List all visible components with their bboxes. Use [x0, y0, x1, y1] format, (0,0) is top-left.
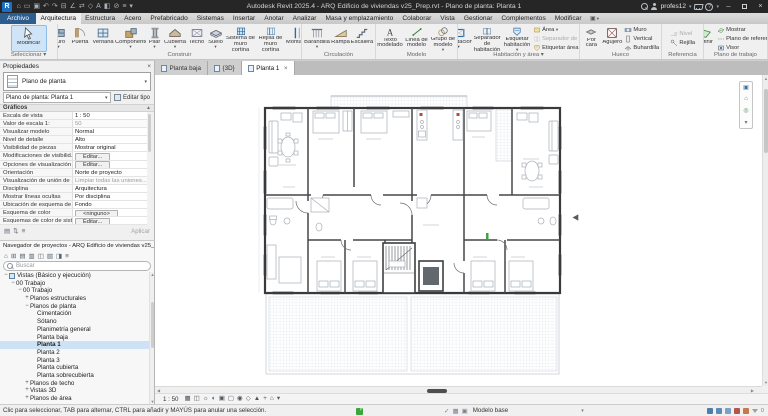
area-button[interactable]: Área▾: [532, 25, 580, 34]
views-icon: [9, 273, 15, 279]
ribbon-tab-acero[interactable]: Acero: [120, 13, 146, 24]
filter-icon[interactable]: ▤: [4, 227, 10, 235]
qat-undo-icon[interactable]: ↶: [41, 0, 50, 13]
tree-item-vistas-basico-y-ejecucion[interactable]: −Vistas (Básico y ejecución): [0, 272, 154, 280]
qat-save-icon[interactable]: ▣: [32, 0, 42, 13]
ribbon-tab-label: Analizar: [293, 15, 317, 22]
qat-measure-icon[interactable]: ∠: [68, 0, 77, 13]
browser-tool-icon-7[interactable]: ≡: [65, 253, 69, 260]
dropdown-caret-icon: ▾: [174, 45, 176, 49]
floor-plan-drawing[interactable]: [155, 75, 762, 386]
definir-button[interactable]: Definir: [704, 25, 716, 52]
dropdown-caret-icon: ▾: [458, 45, 460, 49]
tree-item-00-trabajo[interactable]: −00 Trabajo: [0, 287, 154, 295]
grupo-de-modelo-button[interactable]: Grupo de modelo▾: [430, 25, 457, 52]
ribbon-tab-label: Vista: [440, 15, 455, 22]
dropdown-caret-icon: ▾: [58, 45, 60, 49]
property-label: Mostrar líneas ocultas: [0, 193, 72, 200]
desktop-connector-icon[interactable]: [356, 408, 363, 415]
edit-type-button[interactable]: Editar tipo: [113, 94, 151, 101]
selection-count: 0: [761, 408, 764, 414]
browser-tool-icon-5[interactable]: ▧: [47, 252, 53, 260]
ribbon-panel-title[interactable]: Habitación y área ▾: [458, 52, 579, 59]
property-value[interactable]: Fondo: [72, 201, 151, 208]
ribbon-tab-colaborar[interactable]: Colaborar: [398, 13, 436, 24]
view-document-icon: [214, 65, 220, 72]
property-label: Visualizar modelo: [0, 128, 72, 135]
property-label: Valor de escala 1:: [0, 120, 72, 127]
tree-item-label: Vistas 3D: [30, 387, 56, 395]
minimize-button[interactable]: –: [722, 0, 735, 13]
separador-de-habitacion-label: Separador de habitación: [472, 36, 503, 52]
help-menu-caret-icon[interactable]: ▾: [716, 4, 719, 10]
restore-button[interactable]: [738, 0, 751, 13]
tree-item-label: 00 Trabajo: [16, 280, 45, 288]
view-document-icon: [248, 65, 254, 72]
graphics-section-header[interactable]: Gráficos ▲: [0, 104, 154, 112]
ribbon-panel-hueco: Por caraAgujeroMuroVerticalBuhardillaHue…: [580, 24, 662, 59]
view-tab-planta-baja[interactable]: Planta baja: [155, 61, 208, 75]
view-tab-label: {3D}: [223, 65, 235, 72]
shadows-icon[interactable]: ◐: [212, 394, 216, 404]
pan-icon[interactable]: ⌂: [744, 96, 748, 102]
separador-de-area-button[interactable]: Separador de área: [532, 34, 580, 43]
property-value[interactable]: <ninguno>: [72, 209, 151, 216]
property-row: DisciplinaArquitectura: [0, 185, 151, 193]
worksharing-display-icon[interactable]: +: [263, 394, 267, 404]
worksets-dialog-icon[interactable]: ▦: [452, 407, 458, 415]
temporary-hide-isolate-icon[interactable]: ◇: [246, 394, 251, 404]
property-row: Visualizar modeloNormal: [0, 128, 151, 136]
qat-customize-qat-icon[interactable]: ▾: [128, 0, 135, 13]
montante-label: Montante: [285, 40, 302, 46]
sort-icon[interactable]: ⇅: [13, 227, 18, 235]
worksharing-status-icon[interactable]: [707, 408, 713, 414]
pilar-button[interactable]: Pilar▾: [146, 25, 163, 52]
property-row: Esquema de color<ninguno>: [0, 209, 151, 217]
navigation-bar[interactable]: ▣ ⌂ ◎ ▾: [739, 81, 753, 129]
browser-header: Navegador de proyectos - ARQ Edificio de…: [0, 241, 154, 251]
tree-item-planta-1[interactable]: Planta 1: [0, 341, 154, 349]
separador-de-habitacion-button[interactable]: Separador de habitación: [472, 25, 503, 52]
property-row: Escala de vista1 : 50: [0, 112, 151, 120]
property-edit-button[interactable]: Editar...: [75, 218, 110, 225]
ribbon-tab-modificar[interactable]: Modificar: [550, 13, 586, 24]
properties-title: Propiedades: [3, 63, 39, 70]
tree-item-label: Planos de techo: [30, 380, 74, 388]
tree-scroll-thumb[interactable]: [151, 302, 154, 348]
qat-open-icon[interactable]: ▭: [22, 0, 32, 13]
ribbon-panel-title[interactable]: Seleccionar ▾: [0, 52, 57, 59]
property-value[interactable]: 50: [72, 120, 151, 127]
reveal-hidden-elements-icon[interactable]: ▲: [254, 394, 260, 404]
ribbon-tab-label: Acero: [124, 15, 141, 22]
qat-tag-icon[interactable]: ◇: [86, 0, 94, 13]
section-collapse-icon[interactable]: ▲: [146, 105, 151, 111]
browser-tool-icon-3[interactable]: ▥: [29, 252, 35, 260]
crop-region-visibility-icon[interactable]: ◉: [237, 394, 243, 404]
quick-access-toolbar: ⌂▭▣↶↷⊟∠⇄◇A◧⊘≡▾: [15, 0, 134, 13]
view-tab-planta-1[interactable]: Planta 1×: [242, 61, 295, 75]
ribbon-panel-title[interactable]: Referencia: [662, 52, 703, 59]
ribbon-tab-label: Masa y emplazamiento: [326, 15, 394, 22]
tree-item-planimetria-general[interactable]: Planimetría general: [0, 326, 154, 334]
modify-state-icon[interactable]: ▣▾: [586, 13, 603, 24]
property-value[interactable]: Arquitectura: [72, 185, 151, 192]
tree-item-planta-3[interactable]: Planta 3: [0, 357, 154, 365]
design-options-icon[interactable]: ▣: [462, 407, 468, 415]
habitacion-label: Habitación: [458, 40, 472, 46]
instance-caret-icon: ▾: [105, 95, 109, 101]
select-underlay-toggle-icon[interactable]: [743, 408, 749, 414]
user-menu-caret-icon[interactable]: ▾: [689, 4, 692, 10]
property-value[interactable]: Editar...: [72, 217, 151, 224]
property-row: Visibilidad de piezasMostrar original: [0, 144, 151, 152]
search-icon[interactable]: [641, 3, 648, 10]
tree-item-label: Vistas (Básico y ejecución): [17, 272, 91, 280]
sistema-de-muro-cortina-label: Sistema de muro cortina: [225, 36, 256, 52]
view-tab-3d[interactable]: {3D}: [208, 61, 242, 75]
ribbon-tab-archivo[interactable]: Archivo: [0, 13, 36, 24]
property-row: OrientaciónNorte de proyecto: [0, 169, 151, 177]
vertical-scrollbar[interactable]: ▲ ▼: [762, 75, 768, 386]
nivel-button[interactable]: Nivel: [669, 30, 696, 39]
tree-item-label: Planos de planta: [30, 303, 76, 311]
help-icon[interactable]: ?: [705, 3, 713, 11]
tree-item-label: Planta baja: [37, 334, 68, 342]
tree-item-label: Planta 1: [37, 341, 61, 349]
editing-requests-icon[interactable]: ✓: [444, 407, 449, 415]
ribbon-tab-label: Prefabricado: [150, 15, 187, 22]
property-label: Orientación: [0, 169, 72, 176]
ribbon-tab-label: Complementos: [501, 15, 545, 22]
type-selector[interactable]: Plano de planta ▾: [3, 72, 151, 91]
tree-item-planta-sobrecubierta[interactable]: Planta sobrecubierta: [0, 372, 154, 380]
componente-button[interactable]: Componente▾: [115, 25, 146, 52]
ribbon-panel-circulacion: Barandilla▾RampaEscaleraCirculación: [302, 24, 376, 59]
tree-item-label: Planta 3: [37, 357, 60, 365]
dropdown-caret-icon: ▾: [129, 45, 131, 49]
selection-filter-icon[interactable]: [752, 409, 758, 413]
ribbon-tab-label: Anotar: [264, 15, 283, 22]
plano-de-referencia-button[interactable]: Plano de referencia: [716, 34, 768, 43]
detail-level-icon[interactable]: ▦: [184, 394, 190, 404]
ribbon-tab-label: Insertar: [233, 15, 255, 22]
property-label: Modificaciones de visibilid...: [0, 152, 72, 159]
svg-text:A: A: [387, 27, 394, 37]
ventana-label: Ventana: [91, 40, 115, 46]
rampa-button[interactable]: Rampa: [331, 25, 351, 52]
tree-item-planos-de-techo[interactable]: +Planos de techo: [0, 380, 154, 388]
browser-tool-icon-4[interactable]: ◫: [38, 252, 44, 260]
browser-tree: −Vistas (Básico y ejecución)−00 Trabajo−…: [0, 272, 154, 404]
graphics-section-label: Gráficos: [3, 105, 27, 111]
help-properties-icon[interactable]: ≡: [22, 228, 26, 235]
property-label: Esquema de color: [0, 209, 72, 216]
browser-tool-icon-1[interactable]: ⊞: [11, 252, 16, 260]
active-workset-dropdown[interactable]: Modelo base: [473, 407, 508, 414]
ribbon-tab-label: Estructura: [85, 15, 115, 22]
property-row: Ubicación de esquema de c...Fondo: [0, 201, 151, 209]
qat-redo-icon[interactable]: ↷: [50, 0, 59, 13]
linea-de-modelo-button[interactable]: Línea de modelo: [404, 25, 430, 52]
store-cart-icon[interactable]: [694, 4, 702, 10]
sistema-de-muro-cortina-button[interactable]: Sistema de muro cortina: [225, 25, 256, 52]
titlebar-right: profes12 ▾ ? ▾ – ×: [641, 0, 768, 13]
cubierta-button[interactable]: Cubierta▾: [163, 25, 187, 52]
mostrar-button[interactable]: Mostrar: [716, 25, 768, 34]
property-value[interactable]: Mostrar original: [72, 144, 151, 151]
view-scale-button[interactable]: 1 : 50: [163, 396, 178, 403]
tree-item-label: Planta cubierta: [37, 364, 78, 372]
tree-item-planta-baja[interactable]: Planta baja: [0, 334, 154, 342]
workset-caret-icon[interactable]: ▾: [581, 408, 584, 414]
property-edit-button[interactable]: Editar...: [75, 161, 110, 168]
property-edit-button[interactable]: Editar...: [75, 153, 110, 160]
property-value[interactable]: Limpiar todas las uniones...: [72, 177, 151, 184]
por-cara-button[interactable]: Por cara: [581, 25, 602, 52]
dropdown-caret-icon: ▾: [214, 45, 216, 49]
ribbon-panel-habitacion-y-area: Habitación▾Separador de habitaciónEtique…: [458, 24, 580, 59]
property-row: Valor de escala 1:50: [0, 120, 151, 128]
user-avatar-icon[interactable]: [651, 3, 658, 10]
properties-header: Propiedades ×: [0, 61, 154, 71]
montante-button[interactable]: Montante: [285, 25, 302, 52]
revit-window: { "titlebar": { "title": "Autodesk Revit…: [0, 0, 768, 416]
qat-thin-lines-icon[interactable]: ≡: [121, 0, 128, 13]
ribbon-panel-title[interactable]: Modelo: [376, 52, 457, 59]
property-row: Esquemas de color de sist...Editar...: [0, 217, 151, 225]
visual-style-icon[interactable]: ◫: [194, 394, 200, 404]
ribbon-tab-insertar[interactable]: Insertar: [228, 13, 259, 24]
instance-dropdown[interactable]: Plano de planta: Planta 1 ▾: [3, 92, 111, 103]
qat-aligned-dimension-icon[interactable]: ⇄: [77, 0, 86, 13]
escalera-button[interactable]: Escalera: [351, 25, 374, 52]
navbar-more-icon[interactable]: ▾: [744, 119, 747, 126]
definir-label: Definir: [704, 40, 716, 46]
property-label: Nivel de detalle: [0, 136, 72, 143]
qat-section-icon[interactable]: ⊘: [112, 0, 121, 13]
ribbon-panel-seleccionar: ModificarSeleccionar ▾: [0, 24, 58, 59]
type-selector-caret-icon: ▾: [144, 79, 150, 85]
ribbon-tab-vista[interactable]: Vista: [436, 13, 460, 24]
property-row: Mostrar líneas ocultasPor disciplina: [0, 193, 151, 201]
ribbon-panel-title[interactable]: Circulación: [302, 52, 375, 59]
ribbon-tab-prefabricado[interactable]: Prefabricado: [146, 13, 192, 24]
muro-button[interactable]: Muro: [623, 25, 660, 34]
por-cara-label: Por cara: [581, 38, 602, 50]
tree-item-planos-de-area[interactable]: +Planos de área: [0, 395, 154, 403]
view-type-icon: [7, 75, 18, 88]
browser-tool-icon-2[interactable]: ▤: [19, 252, 25, 260]
sun-path-icon[interactable]: ☼: [203, 394, 209, 404]
etiquetar-area-button[interactable]: Etiquetar área▾: [532, 43, 580, 52]
property-value[interactable]: Por disciplina: [72, 193, 151, 200]
editable-only-toggle-icon[interactable]: [716, 408, 722, 414]
view-tab-label: Planta 1: [256, 65, 279, 72]
texto-modelado-button[interactable]: ATexto modelado: [377, 25, 404, 52]
tree-item-planos-de-planta[interactable]: −Planos de planta: [0, 303, 154, 311]
properties-scroll-thumb[interactable]: [148, 114, 151, 152]
property-row: Opciones de visualización ...Editar...: [0, 161, 151, 169]
ribbon-tab-row: ArchivoArquitecturaEstructuraAceroPrefab…: [0, 13, 768, 24]
ventana-button[interactable]: Ventana: [91, 25, 115, 52]
view-tab-label: Planta baja: [170, 65, 202, 72]
view-tab-bar: Planta baja{3D}Planta 1×: [155, 60, 768, 75]
tree-item-planta-cubierta[interactable]: Planta cubierta: [0, 364, 154, 372]
buhardilla-button[interactable]: Buhardilla: [623, 43, 660, 52]
modificar-button[interactable]: Modificar: [11, 25, 47, 52]
tree-item-label: Planta 2: [37, 349, 60, 357]
ribbon-tab-sistemas[interactable]: Sistemas: [192, 13, 228, 24]
view-tab-close-icon[interactable]: ×: [284, 65, 288, 72]
qat-default-3d-view-icon[interactable]: ◧: [102, 0, 112, 13]
ribbon-panel-title[interactable]: Plano de trabajo: [704, 52, 767, 59]
texto-modelado-label: Texto modelado: [377, 38, 404, 50]
tree-item-00-trabajo[interactable]: −00 Trabajo: [0, 280, 154, 288]
property-label: Ubicación de esquema de c...: [0, 201, 72, 208]
zoom-icon[interactable]: ◎: [743, 107, 748, 114]
ribbon-panel-modelo: ATexto modeladoLínea de modeloGrupo de m…: [376, 24, 458, 59]
property-value[interactable]: Normal: [72, 128, 151, 135]
title-bar: R ⌂▭▣↶↷⊟∠⇄◇A◧⊘≡▾ Autodesk Revit 2025.4 -…: [0, 0, 768, 13]
tree-item-cimentacion[interactable]: Cimentación: [0, 310, 154, 318]
close-button[interactable]: ×: [754, 0, 767, 13]
agujero-label: Agujero: [602, 40, 623, 46]
properties-rows: Escala de vista1 : 50Valor de escala 1:5…: [0, 112, 151, 225]
properties-close-icon[interactable]: ×: [147, 63, 151, 70]
dropdown-caret-icon: ▾: [153, 45, 155, 49]
browser-toolbar: ⌂⊞▤▥◫▧◨≡: [0, 251, 154, 261]
rendering-dialog-icon[interactable]: ▣: [219, 394, 225, 404]
horizontal-scroll-thumb[interactable]: [427, 389, 447, 393]
property-label: Visibilidad de piezas: [0, 144, 72, 151]
vertical-scroll-thumb[interactable]: [764, 89, 768, 153]
signed-in-user[interactable]: profes12: [661, 3, 686, 10]
drawing-area[interactable]: ▣ ⌂ ◎ ▾: [155, 75, 762, 386]
ribbon-tab-label: Archivo: [7, 15, 29, 22]
horizontal-scrollbar[interactable]: ◀ ▶: [155, 386, 762, 393]
ribbon-tab-analizar[interactable]: Analizar: [288, 13, 321, 24]
ribbon-panel-plano-de-trabajo: DefinirMostrarPlano de referenciaVisorPl…: [704, 24, 768, 59]
temporary-view-properties-icon[interactable]: ⌂: [270, 394, 274, 404]
crop-view-icon[interactable]: ▢: [228, 394, 234, 404]
techo-label: Techo: [187, 40, 206, 46]
suelo-button[interactable]: Suelo▾: [206, 25, 225, 52]
more-view-controls-icon[interactable]: ▾: [277, 394, 280, 404]
steering-wheel-icon[interactable]: ▣: [743, 84, 749, 91]
property-value[interactable]: 1 : 50: [72, 112, 151, 119]
window-title: Autodesk Revit 2025.4 - ARQ Edificio de …: [247, 3, 522, 10]
ribbon-panel-title[interactable]: Construir: [58, 52, 301, 59]
scroll-up-icon[interactable]: ▲: [150, 272, 154, 277]
selection-toggles: 0: [707, 405, 764, 416]
rampa-label: Rampa: [331, 40, 351, 46]
ribbon-panel-referencia: NivelRejillaReferencia: [662, 24, 704, 59]
visor-button[interactable]: Visor: [716, 43, 768, 52]
vertical-button[interactable]: Vertical: [623, 34, 660, 43]
property-value[interactable]: Alto: [72, 136, 151, 143]
property-label: Esquemas de color de sist...: [0, 217, 72, 224]
tree-item-sotano[interactable]: Sótano: [0, 318, 154, 326]
tree-item-label: Planta sobrecubierta: [37, 372, 94, 380]
ribbon-tab-anotar[interactable]: Anotar: [260, 13, 288, 24]
tree-item-planos-estructurales[interactable]: +Planos estructurales: [0, 295, 154, 303]
property-row: Modificaciones de visibilid...Editar...: [0, 152, 151, 160]
ribbon-tab-label: Arquitectura: [41, 15, 77, 22]
rejilla-de-muro-cortina-button[interactable]: Rejilla de muro cortina: [256, 25, 285, 52]
project-browser: Navegador de proyectos - ARQ Edificio de…: [0, 240, 155, 404]
ribbon-tab-label: Modificar: [555, 15, 582, 22]
browser-tool-icon-0[interactable]: ⌂: [4, 253, 8, 260]
agujero-button[interactable]: Agujero: [602, 25, 623, 52]
qat-home-icon[interactable]: ⌂: [15, 0, 22, 13]
browser-search-input[interactable]: Buscar: [3, 261, 151, 271]
workset-controls: ✓ ▦ ▣ Modelo base ▾: [444, 405, 584, 416]
status-hint: Clic para seleccionar, TAB para alternar…: [3, 405, 266, 416]
properties-footer: ▤ ⇅ ≡ Aplicar: [0, 225, 154, 237]
rejilla-button[interactable]: Rejilla: [669, 39, 696, 48]
property-label: Opciones de visualización ...: [0, 161, 72, 168]
ribbon-tab-estructura[interactable]: Estructura: [81, 13, 120, 24]
search-placeholder: Buscar: [16, 263, 35, 269]
barandilla-button[interactable]: Barandilla▾: [304, 25, 331, 52]
ribbon-panel-title[interactable]: Hueco: [580, 52, 661, 59]
escalera-label: Escalera: [351, 40, 374, 46]
apply-button[interactable]: Aplicar: [131, 228, 150, 235]
tree-item-label: 00 Trabajo: [23, 287, 52, 295]
scroll-down-icon[interactable]: ▼: [763, 380, 768, 385]
select-pinned-toggle-icon[interactable]: [734, 408, 740, 414]
habitacion-button[interactable]: Habitación▾: [458, 25, 472, 52]
properties-scrollbar[interactable]: [147, 112, 151, 225]
property-label: Escala de vista: [0, 112, 72, 119]
dropdown-caret-icon: ▾: [316, 45, 318, 49]
property-value[interactable]: Norte de proyecto: [72, 169, 151, 176]
tree-item-label: Sótano: [37, 318, 57, 326]
ribbon-tab-label: Gestionar: [464, 15, 493, 22]
puerta-button[interactable]: Puerta: [69, 25, 91, 52]
ribbon-panel-construir: Muro▾PuertaVentanaComponente▾Pilar▾Cubie…: [58, 24, 302, 59]
status-bar: Clic para seleccionar, TAB para alternar…: [0, 404, 768, 416]
scroll-up-icon[interactable]: ▲: [763, 76, 768, 81]
edit-type-icon: [114, 94, 121, 101]
qat-print-icon[interactable]: ⊟: [59, 0, 68, 13]
muro-button[interactable]: Muro▾: [58, 25, 69, 52]
qat-text-icon[interactable]: A: [95, 0, 103, 13]
etiquetar-habitacion-button[interactable]: Etiquetar habitación▾: [503, 25, 532, 52]
property-edit-button[interactable]: <ninguno>: [75, 210, 118, 217]
techo-button[interactable]: Techo: [187, 25, 206, 52]
property-row: Visualización de unión de ...Limpiar tod…: [0, 177, 151, 185]
view-control-bar: 1 : 50 ▦◫☼◐▣▢◉◇▲+⌂▾: [155, 393, 768, 404]
ribbon-tab-masa-y-emplazamiento[interactable]: Masa y emplazamiento: [321, 13, 398, 24]
dropdown-caret-icon: ▾: [556, 27, 558, 33]
tree-scrollbar[interactable]: ▲ ▼: [149, 272, 154, 404]
property-value[interactable]: Editar...: [72, 152, 151, 159]
linea-de-modelo-label: Línea de modelo: [404, 38, 430, 50]
ribbon-tab-arquitectura[interactable]: Arquitectura: [36, 13, 81, 24]
ribbon-tab-gestionar[interactable]: Gestionar: [459, 13, 497, 24]
browser-tool-icon-6[interactable]: ◨: [56, 252, 62, 260]
select-links-toggle-icon[interactable]: [725, 408, 731, 414]
view-document-icon: [161, 65, 167, 72]
tree-item-planta-2[interactable]: Planta 2: [0, 349, 154, 357]
ribbon-tab-complementos[interactable]: Complementos: [497, 13, 550, 24]
revit-logo-icon[interactable]: R: [2, 2, 12, 12]
property-value[interactable]: Editar...: [72, 161, 151, 168]
tree-item-vistas-3d[interactable]: +Vistas 3D: [0, 387, 154, 395]
